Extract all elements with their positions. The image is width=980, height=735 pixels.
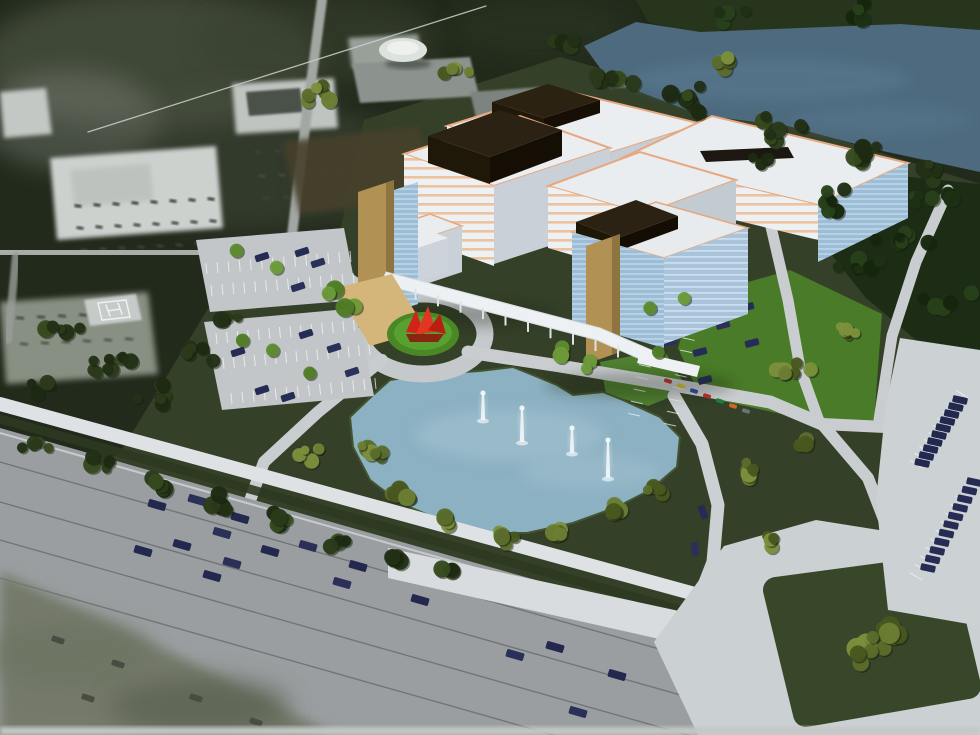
fountain-jet-top <box>480 390 485 395</box>
fountain-jet-top <box>605 437 610 442</box>
canopy-columns <box>595 340 597 351</box>
tree <box>213 311 230 328</box>
tree <box>433 560 450 577</box>
tree <box>662 85 680 103</box>
tree <box>104 354 115 365</box>
tree <box>797 436 813 452</box>
tree <box>357 441 366 450</box>
tree <box>721 51 734 64</box>
tree <box>303 367 316 380</box>
tree <box>340 535 351 546</box>
tree <box>230 244 244 258</box>
fountain-jet-top <box>519 405 524 410</box>
tree <box>266 344 279 357</box>
canopy-columns <box>527 321 529 332</box>
tree <box>314 444 325 455</box>
tree <box>91 366 103 378</box>
tree <box>335 298 354 317</box>
aerial-rendering-canvas <box>0 0 980 735</box>
tree <box>300 446 309 455</box>
tree <box>88 356 98 366</box>
tree <box>867 631 879 643</box>
tree <box>655 484 666 495</box>
photo-building-detail <box>246 88 303 116</box>
tree <box>837 182 851 196</box>
tree <box>625 75 641 91</box>
photo-blur-patch <box>110 678 290 734</box>
tree <box>103 456 115 468</box>
tree <box>791 357 803 369</box>
canopy-columns <box>460 302 462 313</box>
tree <box>323 539 338 554</box>
pond-ripple <box>520 454 660 490</box>
tree <box>850 328 860 338</box>
image-bottom-edge <box>0 727 980 735</box>
tree <box>219 503 233 517</box>
tree <box>321 92 338 109</box>
tree <box>270 509 287 526</box>
tree <box>827 196 838 207</box>
tree <box>821 185 833 197</box>
tree <box>606 71 618 83</box>
tree <box>370 448 381 459</box>
canopy-columns <box>550 327 552 338</box>
tree <box>494 529 510 545</box>
upper-lake-ripple <box>790 104 970 136</box>
tree <box>895 232 904 241</box>
tree <box>47 320 59 332</box>
tree <box>747 464 759 476</box>
tree <box>592 79 601 88</box>
tree <box>850 645 867 662</box>
tree <box>833 261 844 272</box>
photo-building-detail <box>70 163 154 207</box>
tree <box>85 450 100 465</box>
tree <box>871 141 881 151</box>
tree <box>740 6 751 17</box>
tree <box>873 255 885 267</box>
fountain-jet-top <box>569 425 574 430</box>
tree <box>931 168 941 178</box>
tree <box>567 33 581 47</box>
tree <box>920 235 936 251</box>
tree <box>858 147 873 162</box>
tree <box>27 379 36 388</box>
tree <box>211 486 227 502</box>
tree <box>643 485 653 495</box>
tree <box>384 549 400 565</box>
tree <box>180 347 193 360</box>
tree <box>778 366 792 380</box>
tree <box>133 394 143 404</box>
tree <box>854 265 863 274</box>
tree <box>691 104 707 120</box>
tree <box>464 67 474 77</box>
tree <box>764 128 775 139</box>
tree <box>910 197 922 209</box>
tree <box>233 313 242 322</box>
tree <box>694 81 706 93</box>
canopy-columns <box>437 295 439 306</box>
tree <box>760 111 771 122</box>
tree <box>156 394 166 404</box>
tree <box>27 436 41 450</box>
water-tank-top <box>387 41 419 55</box>
tree <box>682 90 693 101</box>
tree <box>925 191 940 206</box>
tree <box>803 362 818 377</box>
tree <box>768 533 779 544</box>
tree <box>311 82 322 93</box>
canopy-columns <box>415 289 417 300</box>
tree <box>322 286 336 300</box>
tree <box>554 527 567 540</box>
tree <box>553 347 570 364</box>
canopy-columns <box>505 315 507 326</box>
tree <box>943 190 960 207</box>
tree <box>714 7 724 17</box>
tree <box>206 354 220 368</box>
tree <box>148 474 164 490</box>
parking-east <box>876 338 980 626</box>
tree <box>446 63 458 75</box>
tree <box>436 508 453 525</box>
tree <box>678 292 691 305</box>
tree <box>918 293 929 304</box>
tree <box>40 375 55 390</box>
sculpture-base <box>406 334 444 342</box>
canopy-columns <box>572 334 574 345</box>
tree <box>236 334 249 347</box>
tree <box>879 623 900 644</box>
tree <box>853 4 864 15</box>
tree <box>17 442 28 453</box>
tree <box>398 489 415 506</box>
tree <box>652 346 665 359</box>
tree <box>155 377 170 392</box>
tree <box>270 261 284 275</box>
tree <box>870 234 882 246</box>
tree <box>607 505 621 519</box>
tree <box>964 285 979 300</box>
tree <box>123 353 139 369</box>
tree <box>924 160 933 169</box>
tree <box>581 363 592 374</box>
architectural-rendering <box>0 0 980 735</box>
scene-layers <box>0 0 980 735</box>
canopy-columns <box>482 308 484 319</box>
tree <box>794 119 807 132</box>
building-shadow <box>545 372 735 398</box>
tree <box>943 295 958 310</box>
photo-building-roof <box>0 88 52 138</box>
tree <box>755 158 767 170</box>
tree <box>643 301 656 314</box>
canopy-columns <box>617 347 619 358</box>
